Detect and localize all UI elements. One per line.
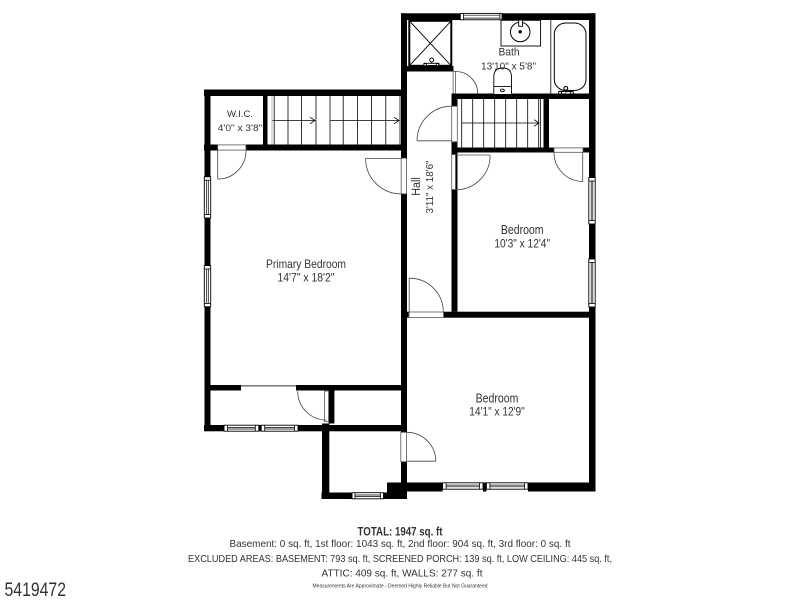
svg-text:10'3" x 12'4": 10'3" x 12'4" — [494, 237, 550, 251]
svg-text:Bedroom: Bedroom — [501, 223, 544, 237]
svg-text:Hall: Hall — [411, 177, 423, 196]
svg-text:W.I.C.: W.I.C. — [227, 109, 253, 119]
svg-text:Bath: Bath — [499, 47, 520, 59]
svg-text:14'7" x 18'2": 14'7" x 18'2" — [278, 271, 335, 285]
svg-text:Bedroom: Bedroom — [476, 392, 519, 406]
svg-text:EXCLUDED AREAS: BASEMENT: 793: EXCLUDED AREAS: BASEMENT: 793 sq. ft, SC… — [188, 554, 612, 565]
svg-text:Basement: 0 sq. ft, 1st floor:: Basement: 0 sq. ft, 1st floor: 1043 sq. … — [230, 539, 571, 550]
svg-text:14'1" x 12'9": 14'1" x 12'9" — [469, 405, 525, 419]
svg-text:13'10" x 5'8": 13'10" x 5'8" — [481, 62, 536, 73]
svg-text:Primary Bedroom: Primary Bedroom — [266, 257, 346, 271]
svg-text:TOTAL: 1947 sq. ft: TOTAL: 1947 sq. ft — [358, 525, 443, 539]
svg-text:4'0" x 3'8": 4'0" x 3'8" — [218, 123, 263, 133]
svg-text:ATTIC: 409 sq. ft, WALLS: 277: ATTIC: 409 sq. ft, WALLS: 277 sq. ft — [322, 569, 483, 580]
svg-text:3'11" x 18'6": 3'11" x 18'6" — [425, 160, 436, 213]
svg-text:5419472: 5419472 — [5, 580, 67, 600]
svg-text:Measurements Are Approximate -: Measurements Are Approximate - Deemed Hi… — [313, 583, 488, 589]
